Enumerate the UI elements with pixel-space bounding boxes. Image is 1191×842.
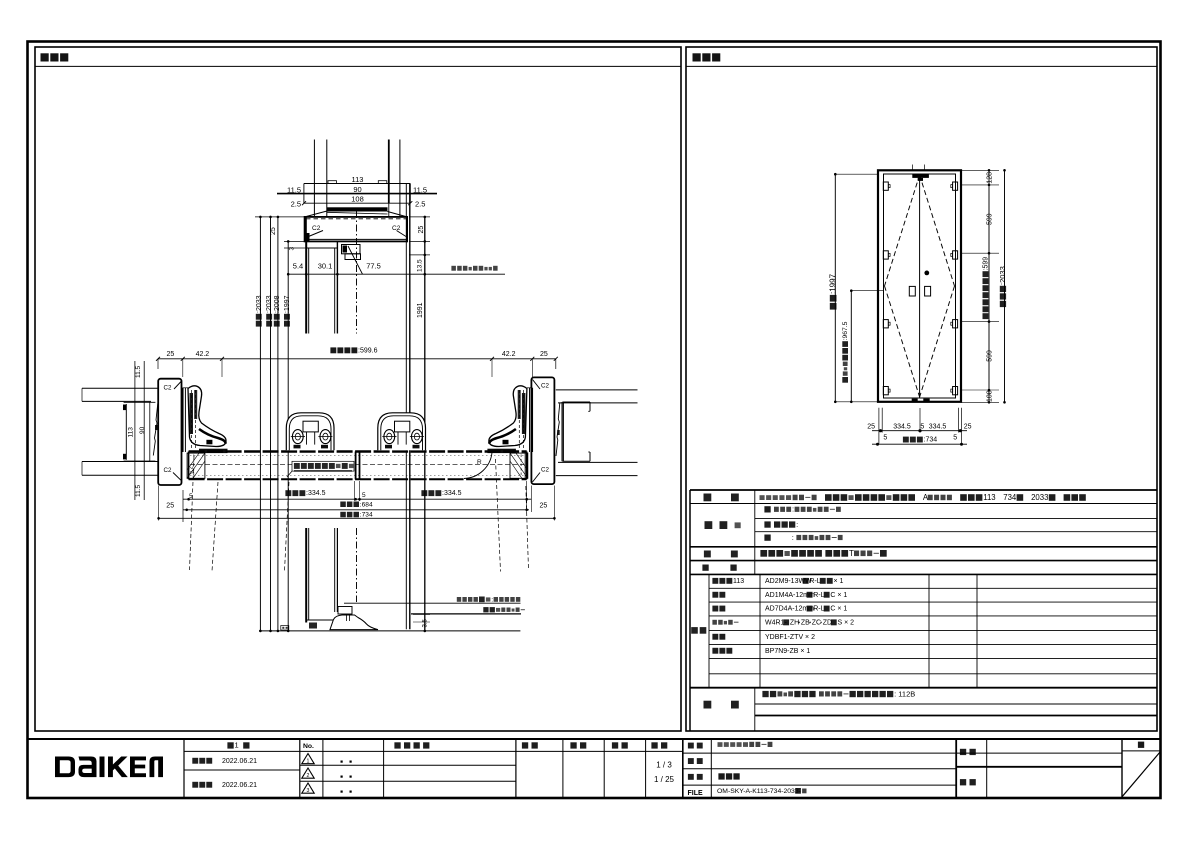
svg-text:1 / 25: 1 / 25 bbox=[654, 775, 675, 784]
svg-text::599.6: :599.6 bbox=[358, 347, 378, 354]
svg-text:599: 599 bbox=[986, 350, 993, 362]
svg-text:5: 5 bbox=[362, 492, 366, 499]
svg-text:ZH: ZH bbox=[790, 619, 799, 626]
svg-text:C2: C2 bbox=[312, 225, 321, 232]
svg-text:5: 5 bbox=[953, 435, 957, 442]
svg-text:1991: 1991 bbox=[417, 302, 424, 318]
svg-text::734: :734 bbox=[924, 437, 938, 444]
svg-text:108: 108 bbox=[351, 195, 364, 204]
svg-text:90: 90 bbox=[139, 426, 146, 434]
svg-text:2033: 2033 bbox=[1031, 493, 1048, 502]
svg-text:1: 1 bbox=[307, 759, 310, 765]
svg-text::684: :684 bbox=[360, 501, 373, 508]
svg-text:C2: C2 bbox=[541, 467, 549, 474]
svg-text:25: 25 bbox=[540, 351, 548, 358]
svg-text:113: 113 bbox=[983, 493, 995, 502]
svg-text:599: 599 bbox=[986, 213, 993, 225]
svg-text:334.5: 334.5 bbox=[929, 424, 947, 431]
svg-text:334.5: 334.5 bbox=[893, 424, 911, 431]
svg-text:734: 734 bbox=[1003, 493, 1017, 502]
svg-text:113: 113 bbox=[128, 427, 135, 438]
svg-text:90: 90 bbox=[353, 185, 361, 194]
svg-text:C × 1: C × 1 bbox=[830, 606, 847, 613]
svg-text:3.5: 3.5 bbox=[422, 618, 428, 627]
svg-text::: : bbox=[796, 520, 798, 529]
svg-text:× 1: × 1 bbox=[833, 578, 843, 585]
svg-text:42.2: 42.2 bbox=[502, 351, 516, 358]
svg-text:25: 25 bbox=[964, 424, 972, 431]
svg-text:3: 3 bbox=[289, 247, 296, 251]
svg-text:R-L: R-L bbox=[813, 592, 824, 599]
svg-text:2.5: 2.5 bbox=[415, 200, 425, 209]
svg-text:C2: C2 bbox=[392, 225, 401, 232]
svg-text:25: 25 bbox=[166, 502, 174, 509]
svg-text:108: 108 bbox=[986, 390, 993, 402]
svg-text:No.: No. bbox=[303, 743, 314, 750]
svg-text::1997: :1997 bbox=[284, 295, 291, 313]
svg-text:11.5: 11.5 bbox=[135, 365, 142, 378]
svg-text:2022.06.21: 2022.06.21 bbox=[222, 782, 257, 789]
svg-text:BP7N9-ZB × 1: BP7N9-ZB × 1 bbox=[765, 648, 810, 655]
svg-text::334.5: :334.5 bbox=[442, 490, 462, 497]
svg-text:3: 3 bbox=[307, 788, 310, 794]
svg-text:11.5: 11.5 bbox=[135, 484, 142, 497]
svg-text:C2: C2 bbox=[164, 385, 172, 392]
svg-text:FILE: FILE bbox=[688, 790, 703, 797]
svg-text:25: 25 bbox=[418, 226, 425, 234]
svg-text:128: 128 bbox=[986, 172, 993, 184]
svg-text:S × 2: S × 2 bbox=[837, 619, 854, 626]
svg-text:C × 1: C × 1 bbox=[830, 592, 847, 599]
svg-text:25: 25 bbox=[540, 502, 548, 509]
svg-text:2: 2 bbox=[307, 773, 310, 779]
svg-text:: 112B: : 112B bbox=[894, 689, 915, 698]
svg-text:ZB: ZB bbox=[801, 619, 810, 626]
svg-text:5: 5 bbox=[883, 435, 887, 442]
svg-text:5.2: 5.2 bbox=[189, 466, 195, 474]
svg-text:25: 25 bbox=[167, 351, 175, 358]
svg-text::967.5: :967.5 bbox=[842, 321, 849, 340]
svg-text:113: 113 bbox=[733, 578, 744, 585]
svg-text:ZC: ZC bbox=[812, 619, 821, 626]
svg-text:13.5: 13.5 bbox=[417, 259, 424, 272]
svg-text:77.5: 77.5 bbox=[366, 262, 381, 271]
svg-text:R-L: R-L bbox=[809, 578, 820, 585]
svg-text:113: 113 bbox=[352, 175, 364, 184]
svg-text::2033: :2033 bbox=[256, 295, 263, 313]
svg-text::599: :599 bbox=[983, 257, 990, 271]
svg-text::: : bbox=[792, 505, 794, 514]
svg-text:1 / 3: 1 / 3 bbox=[656, 761, 672, 770]
svg-text::2033: :2033 bbox=[266, 295, 273, 313]
svg-text::2008: :2008 bbox=[274, 295, 281, 313]
svg-text:OM-SKY-A-K113-734-2033-: OM-SKY-A-K113-734-2033- bbox=[717, 788, 801, 795]
svg-text:R-L: R-L bbox=[813, 606, 824, 613]
svg-text::: : bbox=[491, 596, 493, 603]
svg-text:25: 25 bbox=[867, 424, 875, 431]
svg-text:2022.06.21: 2022.06.21 bbox=[222, 758, 257, 765]
svg-text::334.5: :334.5 bbox=[306, 490, 326, 497]
svg-text:42.2: 42.2 bbox=[196, 351, 210, 358]
svg-text:T: T bbox=[849, 549, 854, 558]
svg-text::2033: :2033 bbox=[998, 266, 1007, 285]
svg-text:30.1: 30.1 bbox=[318, 262, 333, 271]
svg-text:5: 5 bbox=[920, 424, 924, 431]
svg-text::734: :734 bbox=[360, 512, 373, 519]
svg-text:C2: C2 bbox=[541, 383, 549, 390]
svg-text:2.5: 2.5 bbox=[291, 200, 301, 209]
svg-text:5.4: 5.4 bbox=[293, 262, 303, 271]
svg-text:1: 1 bbox=[235, 741, 239, 750]
svg-text:ZD: ZD bbox=[823, 619, 832, 626]
svg-text:25: 25 bbox=[270, 227, 277, 235]
svg-text::1997: :1997 bbox=[829, 273, 838, 294]
svg-text::: : bbox=[792, 533, 794, 542]
svg-text:YDBF1-ZTV × 2: YDBF1-ZTV × 2 bbox=[765, 634, 815, 641]
svg-text:R: R bbox=[477, 459, 482, 466]
svg-text:C2: C2 bbox=[164, 467, 172, 474]
